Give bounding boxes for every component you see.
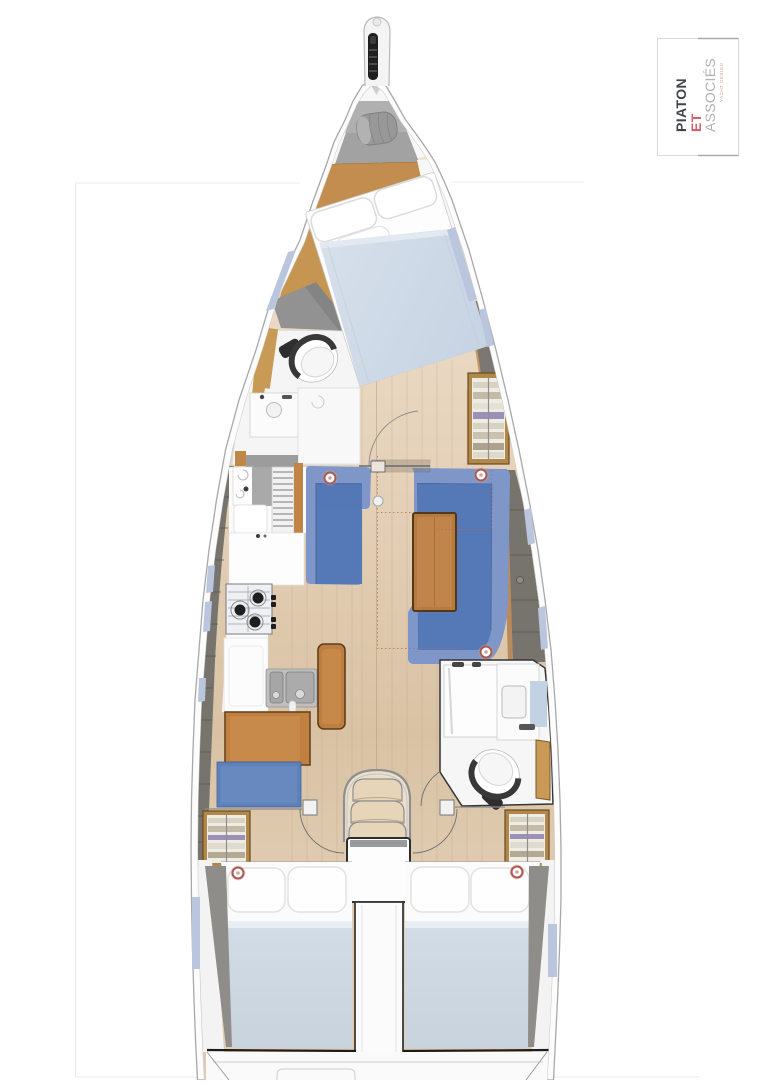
svg-text:ASSOCIÉS: ASSOCIÉS [702,58,718,132]
svg-text:PIATON: PIATON [673,78,689,132]
svg-text:YACHT DESIGN: YACHT DESIGN [719,63,724,102]
